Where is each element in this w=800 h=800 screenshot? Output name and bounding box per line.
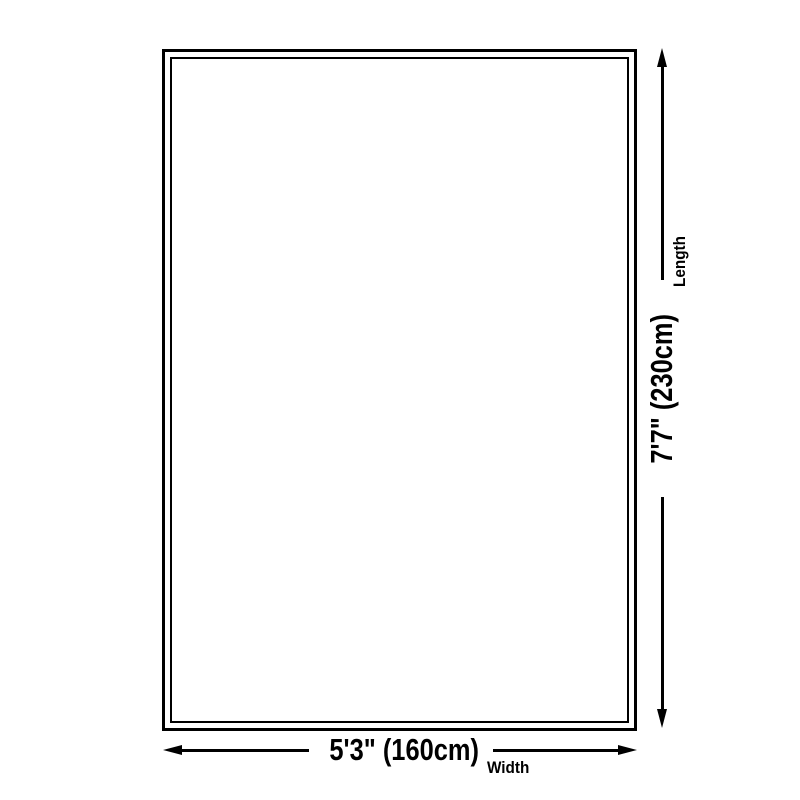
length-label: Length xyxy=(670,236,690,287)
width-arrow-left-segment xyxy=(178,749,309,752)
width-dimension-group: 5'3" (160cm) Width xyxy=(163,727,637,773)
length-arrow-lower-segment xyxy=(661,497,664,713)
length-value: 7'7" (230cm) xyxy=(639,315,685,463)
length-dimension-group: 7'7" (230cm) Length xyxy=(639,48,685,728)
rug-inner-border xyxy=(170,57,629,723)
width-label: Width xyxy=(487,758,529,778)
width-value-text: 5'3" (160cm) xyxy=(329,732,479,768)
width-arrow-right-segment xyxy=(493,749,622,752)
length-value-text: 7'7" (230cm) xyxy=(644,314,680,464)
arrowhead-right-icon xyxy=(618,745,637,755)
rug-dimension-diagram: 7'7" (230cm) Length 5'3" (160cm) Width xyxy=(0,0,800,800)
length-arrow-upper-segment xyxy=(661,64,664,280)
width-value: 5'3" (160cm) xyxy=(328,727,480,773)
rug-outline xyxy=(162,49,637,731)
arrowhead-up-icon xyxy=(657,48,667,67)
